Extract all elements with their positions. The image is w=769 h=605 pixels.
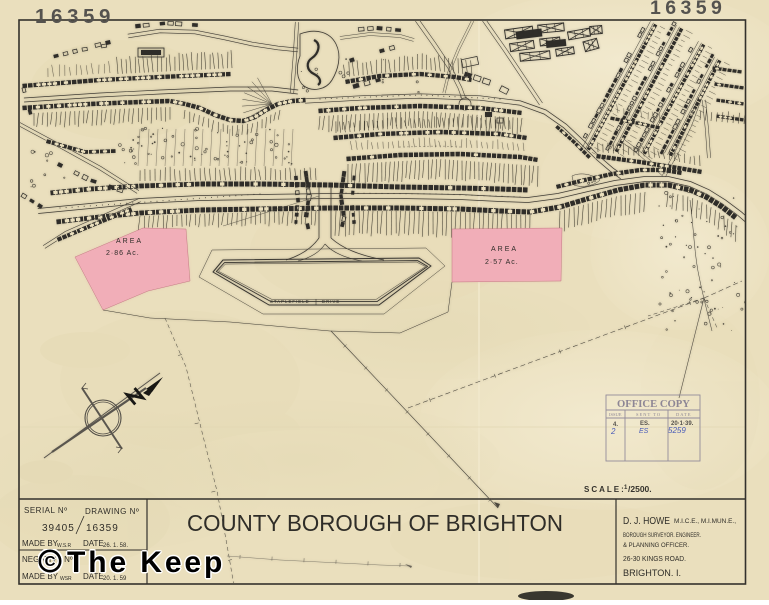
svg-text:5259: 5259: [668, 426, 686, 435]
svg-text:M.I.C.E., M.I.MUN.E.,: M.I.C.E., M.I.MUN.E.,: [674, 519, 736, 525]
svg-text:MADE BY: MADE BY: [22, 539, 59, 548]
svg-text:COUNTY BOROUGH OF BRIGHTON: COUNTY BOROUGH OF BRIGHTON: [187, 510, 563, 536]
svg-text:DATE: DATE: [676, 412, 692, 417]
svg-text:ES.: ES.: [640, 421, 650, 427]
svg-text:/2500.: /2500.: [628, 484, 652, 494]
svg-text:C: C: [45, 553, 56, 570]
svg-text:DRAWING Nº: DRAWING Nº: [85, 507, 139, 516]
svg-text:ES: ES: [639, 428, 649, 435]
svg-text:BRIGHTON. I.: BRIGHTON. I.: [623, 568, 681, 578]
svg-text:SCALE:: SCALE:: [584, 485, 626, 494]
svg-text:26-30 KINGS ROAD.: 26-30 KINGS ROAD.: [623, 556, 686, 563]
svg-text:BOROUGH SURVEYOR. ENGINEER.: BOROUGH SURVEYOR. ENGINEER.: [623, 532, 701, 539]
svg-text:& PLANNING OFFICER.: & PLANNING OFFICER.: [623, 542, 689, 549]
svg-text:SERIAL Nº: SERIAL Nº: [24, 506, 68, 515]
svg-text:16359: 16359: [35, 5, 115, 28]
svg-text:ISSUE: ISSUE: [609, 412, 622, 417]
svg-text:16359: 16359: [650, 0, 726, 19]
svg-text:D. J. HOWE: D. J. HOWE: [623, 516, 670, 527]
svg-text:SENT TO: SENT TO: [636, 412, 661, 417]
svg-text:2: 2: [610, 427, 616, 436]
svg-text:39405: 39405: [42, 523, 75, 534]
svg-text:OFFICE COPY: OFFICE COPY: [617, 398, 690, 410]
svg-text:16359: 16359: [86, 523, 119, 534]
